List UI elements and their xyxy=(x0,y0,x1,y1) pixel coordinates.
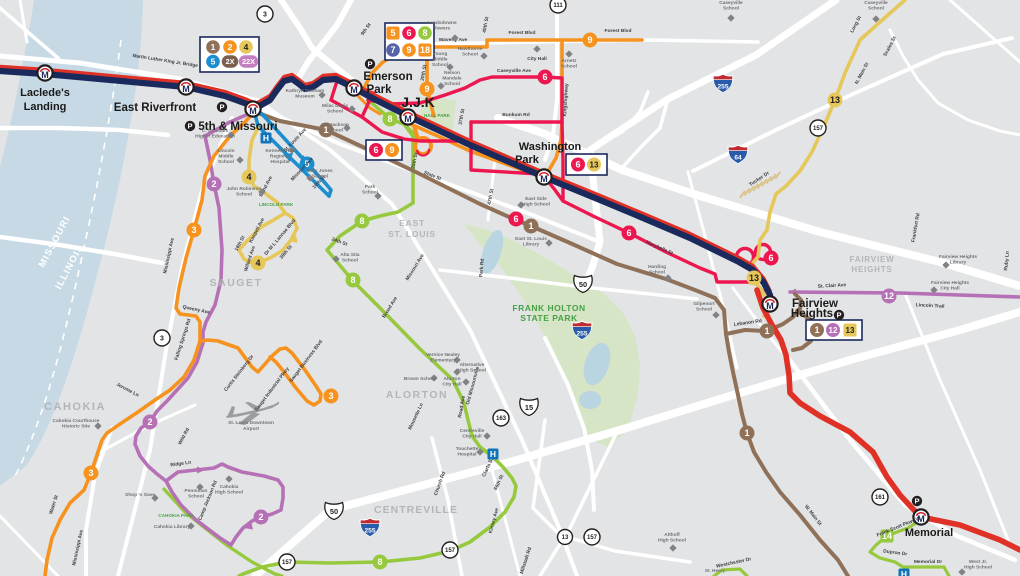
svg-text:13: 13 xyxy=(590,160,599,169)
svg-text:HardingSchool: HardingSchool xyxy=(648,264,666,275)
svg-text:AlternativeHigh School: AlternativeHigh School xyxy=(458,362,486,373)
svg-text:13: 13 xyxy=(749,273,759,283)
svg-text:2: 2 xyxy=(258,512,263,522)
svg-text:Washington: Washington xyxy=(519,141,582,153)
svg-text:8: 8 xyxy=(350,275,355,285)
svg-text:50: 50 xyxy=(330,507,338,516)
svg-text:9: 9 xyxy=(587,35,592,45)
svg-text:J.J.K: J.J.K xyxy=(401,94,434,110)
svg-text:SAUGET: SAUGET xyxy=(210,277,263,289)
svg-text:East SideHigh School: East SideHigh School xyxy=(522,196,550,207)
svg-text:H: H xyxy=(901,569,907,576)
svg-text:STATE PARK: STATE PARK xyxy=(520,313,578,323)
svg-text:Landing: Landing xyxy=(24,101,67,113)
svg-text:157: 157 xyxy=(587,535,598,541)
svg-text:East Riverfront: East Riverfront xyxy=(114,102,197,114)
svg-text:Airport: Airport xyxy=(243,426,259,432)
svg-text:3: 3 xyxy=(263,12,267,19)
svg-text:Memorial: Memorial xyxy=(905,527,953,539)
svg-text:12: 12 xyxy=(829,326,838,335)
svg-text:12: 12 xyxy=(884,291,894,301)
svg-text:Memorial Dr: Memorial Dr xyxy=(914,559,942,565)
svg-text:18: 18 xyxy=(420,45,430,55)
svg-text:2: 2 xyxy=(147,417,152,427)
svg-text:ArnetzSchool: ArnetzSchool xyxy=(561,58,577,69)
svg-text:1: 1 xyxy=(528,221,533,231)
svg-text:Shop 'n Save: Shop 'n Save xyxy=(125,492,155,498)
svg-text:GilpenortSchool: GilpenortSchool xyxy=(693,301,715,312)
svg-text:H: H xyxy=(263,133,269,143)
svg-text:FRANK HOLTON: FRANK HOLTON xyxy=(512,303,585,313)
svg-text:M: M xyxy=(41,70,49,80)
svg-text:13: 13 xyxy=(830,95,840,105)
svg-text:P: P xyxy=(219,103,224,112)
svg-text:157: 157 xyxy=(813,126,824,132)
svg-text:8: 8 xyxy=(359,216,364,226)
svg-text:15: 15 xyxy=(525,403,533,412)
svg-text:P: P xyxy=(367,60,372,69)
svg-text:4: 4 xyxy=(246,172,251,182)
svg-text:CAHOKIA: CAHOKIA xyxy=(44,401,106,413)
svg-text:HEIGHTS: HEIGHTS xyxy=(851,265,892,274)
svg-text:P: P xyxy=(836,311,841,320)
svg-text:LINCOLN PARK: LINCOLN PARK xyxy=(259,202,294,207)
svg-text:4: 4 xyxy=(244,42,249,52)
svg-text:157: 157 xyxy=(282,560,293,566)
svg-text:13: 13 xyxy=(846,326,855,335)
svg-text:163: 163 xyxy=(496,416,507,422)
svg-text:22X: 22X xyxy=(242,57,255,66)
svg-text:M: M xyxy=(404,114,412,124)
svg-text:Cahokia Library: Cahokia Library xyxy=(154,524,191,530)
svg-text:P: P xyxy=(187,122,192,131)
svg-text:St. Louis Downtown: St. Louis Downtown xyxy=(228,420,274,426)
svg-text:1: 1 xyxy=(814,325,819,335)
svg-text:CentrevilleCity Hall: CentrevilleCity Hall xyxy=(460,428,485,439)
svg-text:8: 8 xyxy=(422,28,427,38)
svg-text:8: 8 xyxy=(387,114,392,124)
svg-text:HALL PARK: HALL PARK xyxy=(424,113,451,118)
svg-text:ALORTON: ALORTON xyxy=(386,389,448,401)
svg-text:2X: 2X xyxy=(226,57,235,66)
svg-text:YoungMiddleSchool: YoungMiddleSchool xyxy=(432,51,448,68)
svg-text:M: M xyxy=(350,85,358,95)
svg-text:3: 3 xyxy=(88,468,93,478)
svg-text:255: 255 xyxy=(576,331,587,338)
svg-text:LincolnMiddleSchool: LincolnMiddleSchool xyxy=(217,148,234,165)
svg-text:Forest Blvd: Forest Blvd xyxy=(509,30,536,36)
svg-text:Brown School: Brown School xyxy=(404,376,436,382)
svg-text:1: 1 xyxy=(764,326,769,336)
svg-text:CAHOKIA PARK: CAHOKIA PARK xyxy=(158,513,194,518)
svg-text:CENTREVILLE: CENTREVILLE xyxy=(374,504,458,516)
svg-text:P: P xyxy=(914,497,919,506)
svg-text:Alta SitaSchool: Alta SitaSchool xyxy=(340,252,360,263)
svg-text:6: 6 xyxy=(768,253,773,263)
svg-text:EAST: EAST xyxy=(399,218,425,228)
svg-text:6: 6 xyxy=(406,28,411,38)
svg-text:6: 6 xyxy=(575,160,580,170)
svg-text:6: 6 xyxy=(373,145,378,155)
svg-text:Vernice NealeyElementary: Vernice NealeyElementary xyxy=(426,352,460,363)
svg-text:M: M xyxy=(182,84,190,94)
svg-text:Laclede's: Laclede's xyxy=(20,87,70,99)
svg-text:111: 111 xyxy=(553,3,563,9)
svg-text:Heights: Heights xyxy=(791,308,833,320)
svg-text:NelsonMandaleSchool: NelsonMandaleSchool xyxy=(442,70,462,87)
svg-text:4: 4 xyxy=(255,258,260,268)
svg-text:St. Henry: St. Henry xyxy=(705,568,726,573)
svg-text:161: 161 xyxy=(875,495,886,501)
svg-text:9: 9 xyxy=(389,145,394,155)
svg-text:6: 6 xyxy=(542,72,547,82)
svg-text:ST. LOUIS: ST. LOUIS xyxy=(388,229,436,239)
svg-text:Caseyville Ave: Caseyville Ave xyxy=(497,68,531,74)
svg-text:8: 8 xyxy=(377,557,382,567)
svg-text:5: 5 xyxy=(211,57,216,67)
svg-text:3: 3 xyxy=(191,225,196,235)
svg-text:2: 2 xyxy=(228,42,233,52)
svg-text:AlortonCity Hall: AlortonCity Hall xyxy=(442,376,461,387)
svg-text:M: M xyxy=(249,106,257,116)
svg-text:7: 7 xyxy=(390,45,395,55)
svg-text:M: M xyxy=(766,301,774,311)
svg-text:City Hall: City Hall xyxy=(527,56,547,62)
svg-text:6: 6 xyxy=(513,214,518,224)
svg-text:9: 9 xyxy=(424,84,429,94)
svg-text:5: 5 xyxy=(390,28,395,38)
svg-text:2: 2 xyxy=(211,179,216,189)
svg-text:64: 64 xyxy=(734,155,742,162)
svg-text:157: 157 xyxy=(445,548,456,554)
svg-text:3: 3 xyxy=(160,336,164,343)
svg-text:6: 6 xyxy=(626,228,631,238)
svg-text:Park: Park xyxy=(515,154,540,166)
svg-text:Forest Blvd: Forest Blvd xyxy=(605,28,632,34)
svg-text:13: 13 xyxy=(562,535,569,541)
svg-text:M: M xyxy=(540,174,548,184)
svg-text:Emerson: Emerson xyxy=(363,71,412,83)
svg-text:3: 3 xyxy=(328,391,333,401)
svg-text:255: 255 xyxy=(717,84,728,91)
svg-text:TouchetteHospital: TouchetteHospital xyxy=(456,446,479,457)
svg-text:1: 1 xyxy=(211,42,216,52)
svg-text:9: 9 xyxy=(406,45,411,55)
svg-text:50: 50 xyxy=(579,280,587,289)
svg-text:H: H xyxy=(490,449,496,459)
svg-text:FAIRVIEW: FAIRVIEW xyxy=(850,255,895,264)
svg-text:255: 255 xyxy=(364,528,375,535)
svg-text:Bunkum Rd: Bunkum Rd xyxy=(502,112,529,118)
svg-text:1: 1 xyxy=(744,428,749,438)
svg-text:Park: Park xyxy=(367,84,393,96)
